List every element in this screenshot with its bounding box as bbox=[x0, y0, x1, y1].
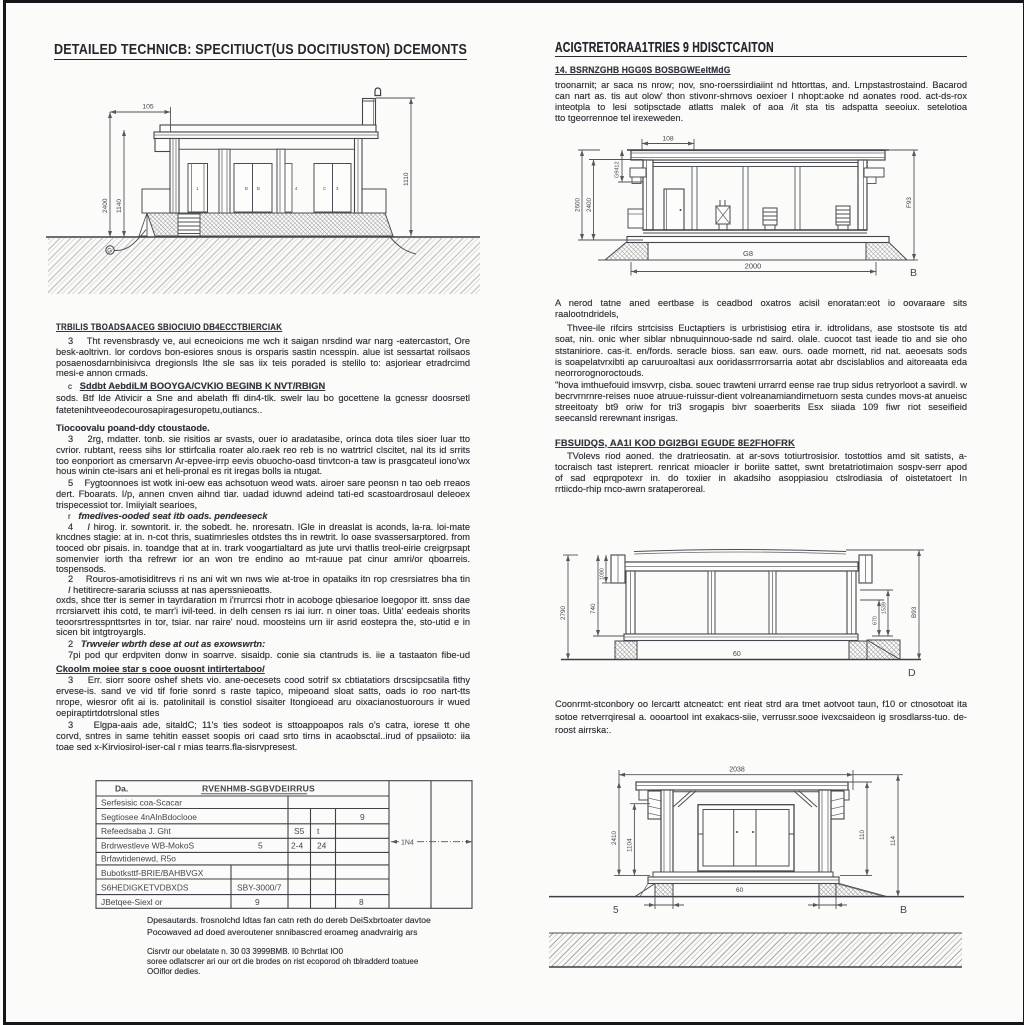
svg-text:740: 740 bbox=[590, 603, 597, 614]
svg-text:Segtiosee 4nAlnBdoclooe: Segtiosee 4nAlnBdoclooe bbox=[101, 812, 197, 822]
svg-text:G9412: G9412 bbox=[615, 161, 621, 178]
svg-text:Bubotksttf-BRIE/BAHBVGX: Bubotksttf-BRIE/BAHBVGX bbox=[101, 868, 204, 878]
svg-text:RVENHMB-SGBVDEIRRUS: RVENHMB-SGBVDEIRRUS bbox=[202, 784, 315, 794]
svg-text:2038: 2038 bbox=[729, 767, 745, 774]
svg-text:2790: 2790 bbox=[560, 605, 567, 620]
svg-text:24: 24 bbox=[317, 841, 327, 851]
svg-text:1539: 1539 bbox=[882, 602, 888, 614]
svg-text:C: C bbox=[323, 186, 326, 191]
svg-text:9: 9 bbox=[360, 812, 365, 822]
svg-text:Da.: Da. bbox=[115, 784, 128, 794]
svg-text:t: t bbox=[317, 826, 320, 836]
svg-text:8: 8 bbox=[359, 897, 364, 907]
svg-text:2000: 2000 bbox=[745, 262, 762, 271]
svg-text:114: 114 bbox=[890, 835, 897, 846]
svg-text:G8: G8 bbox=[743, 249, 753, 258]
svg-text:105: 105 bbox=[142, 104, 154, 111]
svg-text:1140: 1140 bbox=[116, 199, 123, 213]
svg-text:B: B bbox=[245, 186, 248, 191]
svg-text:F93: F93 bbox=[906, 197, 913, 208]
svg-text:1110: 1110 bbox=[403, 172, 410, 186]
svg-text:G: G bbox=[107, 249, 112, 255]
svg-text:JBetqee-Siexl or: JBetqee-Siexl or bbox=[101, 897, 163, 907]
svg-text:1090: 1090 bbox=[600, 568, 606, 580]
svg-text:2400: 2400 bbox=[586, 197, 593, 212]
svg-text:B: B bbox=[900, 904, 907, 916]
svg-text:B: B bbox=[910, 267, 917, 279]
svg-text:1N4: 1N4 bbox=[401, 840, 414, 847]
svg-text:SBY-3000/7: SBY-3000/7 bbox=[237, 883, 282, 893]
svg-text:110: 110 bbox=[859, 829, 866, 840]
svg-text:S6HEDIGKETVDBXDS: S6HEDIGKETVDBXDS bbox=[101, 883, 189, 893]
svg-text:D: D bbox=[908, 667, 916, 679]
svg-text:S5: S5 bbox=[294, 826, 305, 836]
svg-text:B93: B93 bbox=[911, 606, 918, 618]
svg-text:5: 5 bbox=[613, 905, 619, 916]
svg-text:4: 4 bbox=[295, 186, 298, 191]
svg-text:Brfawtidenewd, R5o: Brfawtidenewd, R5o bbox=[101, 854, 176, 864]
svg-text:Brdrwestleve WB-MokoS: Brdrwestleve WB-MokoS bbox=[101, 841, 194, 851]
svg-text:60: 60 bbox=[736, 887, 744, 894]
svg-text:2-4: 2-4 bbox=[291, 841, 303, 851]
svg-text:9: 9 bbox=[255, 897, 260, 907]
svg-text:670: 670 bbox=[873, 616, 879, 625]
svg-text:Serfesisic coa-Scacar: Serfesisic coa-Scacar bbox=[101, 798, 182, 808]
svg-text:Refeedsaba J. Ght: Refeedsaba J. Ght bbox=[101, 826, 172, 836]
svg-text:5: 5 bbox=[258, 841, 263, 851]
svg-text:B: B bbox=[257, 186, 260, 191]
svg-text:1104: 1104 bbox=[627, 838, 634, 852]
svg-text:2410: 2410 bbox=[611, 830, 618, 845]
svg-text:2400: 2400 bbox=[102, 198, 109, 213]
svg-text:2600: 2600 bbox=[575, 197, 582, 212]
svg-text:108: 108 bbox=[662, 136, 674, 143]
svg-text:60: 60 bbox=[733, 651, 741, 658]
